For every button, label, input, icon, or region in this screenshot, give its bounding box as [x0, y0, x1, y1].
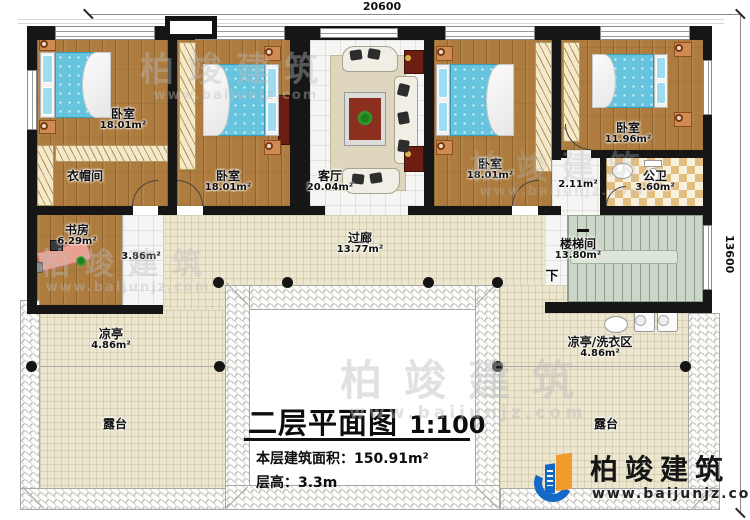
- wardrobe: [37, 145, 54, 206]
- cloakroom-label: 衣帽间: [67, 170, 103, 183]
- window: [703, 60, 712, 115]
- terrace-right-label: 露台: [594, 418, 618, 431]
- terrace-left-label: 露台: [103, 418, 127, 431]
- nightstand: [264, 46, 281, 61]
- bed-blanket: [592, 54, 616, 108]
- courtyard-border-right: [475, 285, 500, 510]
- wall-bedroom4-south: [591, 150, 703, 158]
- nightstand: [39, 120, 56, 134]
- terrace-left-border: [20, 300, 40, 510]
- stairs-down-label: 下: [545, 270, 558, 284]
- column: [680, 361, 691, 372]
- eave-line: [18, 19, 724, 20]
- column: [26, 361, 37, 372]
- bedroom3-label: 卧室 18.01m²: [467, 158, 513, 182]
- study-annex-label: 3.86m²: [121, 252, 160, 263]
- column: [423, 277, 434, 288]
- tv-cabinet: [278, 95, 290, 145]
- window: [27, 70, 37, 130]
- window: [600, 26, 690, 40]
- sofa-cushion: [369, 172, 382, 184]
- wardrobe: [535, 42, 552, 172]
- wall-living-stub: [299, 206, 325, 215]
- area-row: 本层建筑面积：150.91m²: [256, 448, 429, 468]
- wardrobe: [179, 42, 196, 170]
- bedroom4-label: 卧室 11.96m²: [605, 122, 651, 146]
- window: [320, 28, 398, 38]
- sofa-cushion: [367, 48, 381, 60]
- bed-pillow: [42, 87, 53, 115]
- bedroom1-label: 卧室 18.01m²: [100, 108, 146, 132]
- column: [214, 361, 225, 372]
- column: [492, 361, 503, 372]
- plan-title-row: 二层平面图 1:100: [248, 400, 486, 442]
- stairs-arrow: [577, 229, 589, 232]
- study-label: 书房 6.29m²: [57, 224, 96, 248]
- bathroom-sink: [612, 163, 633, 179]
- washing-machine: [634, 311, 655, 332]
- sofa-cushion: [349, 49, 362, 61]
- washing-machine: [657, 311, 678, 332]
- pavilion-divider: [40, 366, 228, 367]
- corridor-label: 过廊 13.77m²: [337, 232, 383, 256]
- plan-title: 二层平面图: [248, 406, 398, 440]
- sofa-cushion: [397, 139, 410, 152]
- wall-south-bedroom3: [538, 206, 561, 215]
- wall-stairwell-south: [545, 302, 712, 313]
- wall-study-south: [27, 305, 163, 314]
- wall-south-bathroom: [600, 206, 712, 215]
- nightstand: [436, 140, 453, 155]
- plan-scale: 1:100: [409, 411, 485, 439]
- logo-tower-orange: [556, 453, 572, 491]
- plant: [357, 110, 373, 126]
- sofa-cushion: [352, 173, 365, 184]
- window: [55, 26, 155, 40]
- dimension-top-value: 20600: [363, 1, 401, 13]
- courtyard-border-left: [225, 285, 250, 510]
- title-block: 二层平面图 1:100 本层建筑面积：150.91m² 层高：3.3m: [248, 400, 472, 500]
- nightstand: [674, 42, 692, 57]
- living-room-label: 客厅 20.04m²: [307, 170, 353, 194]
- brand-url: www.baijunjz.com: [592, 486, 750, 502]
- brand-logo-icon: [532, 452, 584, 506]
- wall-south-segment: [158, 206, 168, 215]
- dimension-right-value: 13600: [723, 235, 736, 273]
- window: [445, 26, 535, 40]
- floor-plan: 卧室 18.01m² 衣帽间 卧室 18.01m² 客厅 20.04m² 卧室 …: [0, 0, 750, 520]
- bed-blanket: [203, 64, 230, 136]
- wall-south-bedroom2: [203, 206, 290, 215]
- dimension-line-top: [88, 14, 740, 15]
- title-underline: [244, 438, 470, 441]
- laundry-sink: [604, 316, 628, 333]
- column: [213, 277, 224, 288]
- bedroom2-label: 卧室 18.01m²: [205, 170, 251, 194]
- bed-pillow: [438, 102, 448, 132]
- nightstand: [436, 46, 453, 61]
- pavilion-left-label: 凉亭 4.86m²: [91, 328, 130, 352]
- chimney-box: [165, 16, 217, 39]
- bed-blanket: [486, 64, 514, 136]
- wall-living-stub: [408, 206, 434, 215]
- nightstand: [674, 112, 692, 127]
- column: [282, 277, 293, 288]
- pavilion-divider: [500, 366, 688, 367]
- dimension-line-right: [740, 14, 741, 514]
- side-cabinet: [404, 50, 424, 74]
- window: [703, 225, 712, 290]
- stairwell-label: 楼梯间 13.80m²: [555, 238, 601, 262]
- wardrobe: [55, 145, 168, 162]
- hall-label: 2.11m²: [558, 180, 597, 191]
- column: [492, 277, 503, 288]
- logo-window-slits: [547, 470, 553, 486]
- wall-bedroom1-bedroom2: [168, 26, 177, 215]
- sofa-cushion: [397, 111, 410, 125]
- bed-pillow: [656, 82, 666, 104]
- bathroom-label: 公卫 3.60m²: [635, 170, 674, 194]
- wall-hall-bathroom: [600, 158, 606, 206]
- wall-south-cloakroom: [27, 206, 133, 215]
- eave-line: [18, 23, 724, 24]
- bed-pillow: [267, 68, 277, 98]
- wall-living-east: [424, 26, 434, 215]
- courtyard-border-top: [225, 285, 500, 310]
- terrace-left-floor: [40, 310, 228, 488]
- desk-plant: [76, 256, 86, 266]
- brand-name: 柏竣建筑: [590, 448, 730, 488]
- wall-south-bedroom3: [434, 206, 512, 215]
- pavilion-laundry-label: 凉亭/洗衣区 4.86m²: [568, 336, 632, 360]
- nightstand: [264, 140, 281, 155]
- bed-pillow: [267, 102, 277, 132]
- toilet-tank: [644, 160, 662, 167]
- wall-bedroom4-south: [561, 150, 567, 158]
- brand-logo: 柏竣建筑 www.baijunjz.com: [532, 448, 742, 510]
- height-row: 层高：3.3m: [256, 472, 337, 492]
- bed-pillow: [42, 55, 53, 83]
- bed-pillow: [656, 57, 666, 79]
- corridor-passage-left: [163, 285, 228, 313]
- bed-pillow: [438, 68, 448, 98]
- terrace-left-border: [20, 488, 230, 510]
- wall-bedroom3-bedroom4: [552, 26, 561, 160]
- wall-bedroom2-living: [290, 26, 299, 215]
